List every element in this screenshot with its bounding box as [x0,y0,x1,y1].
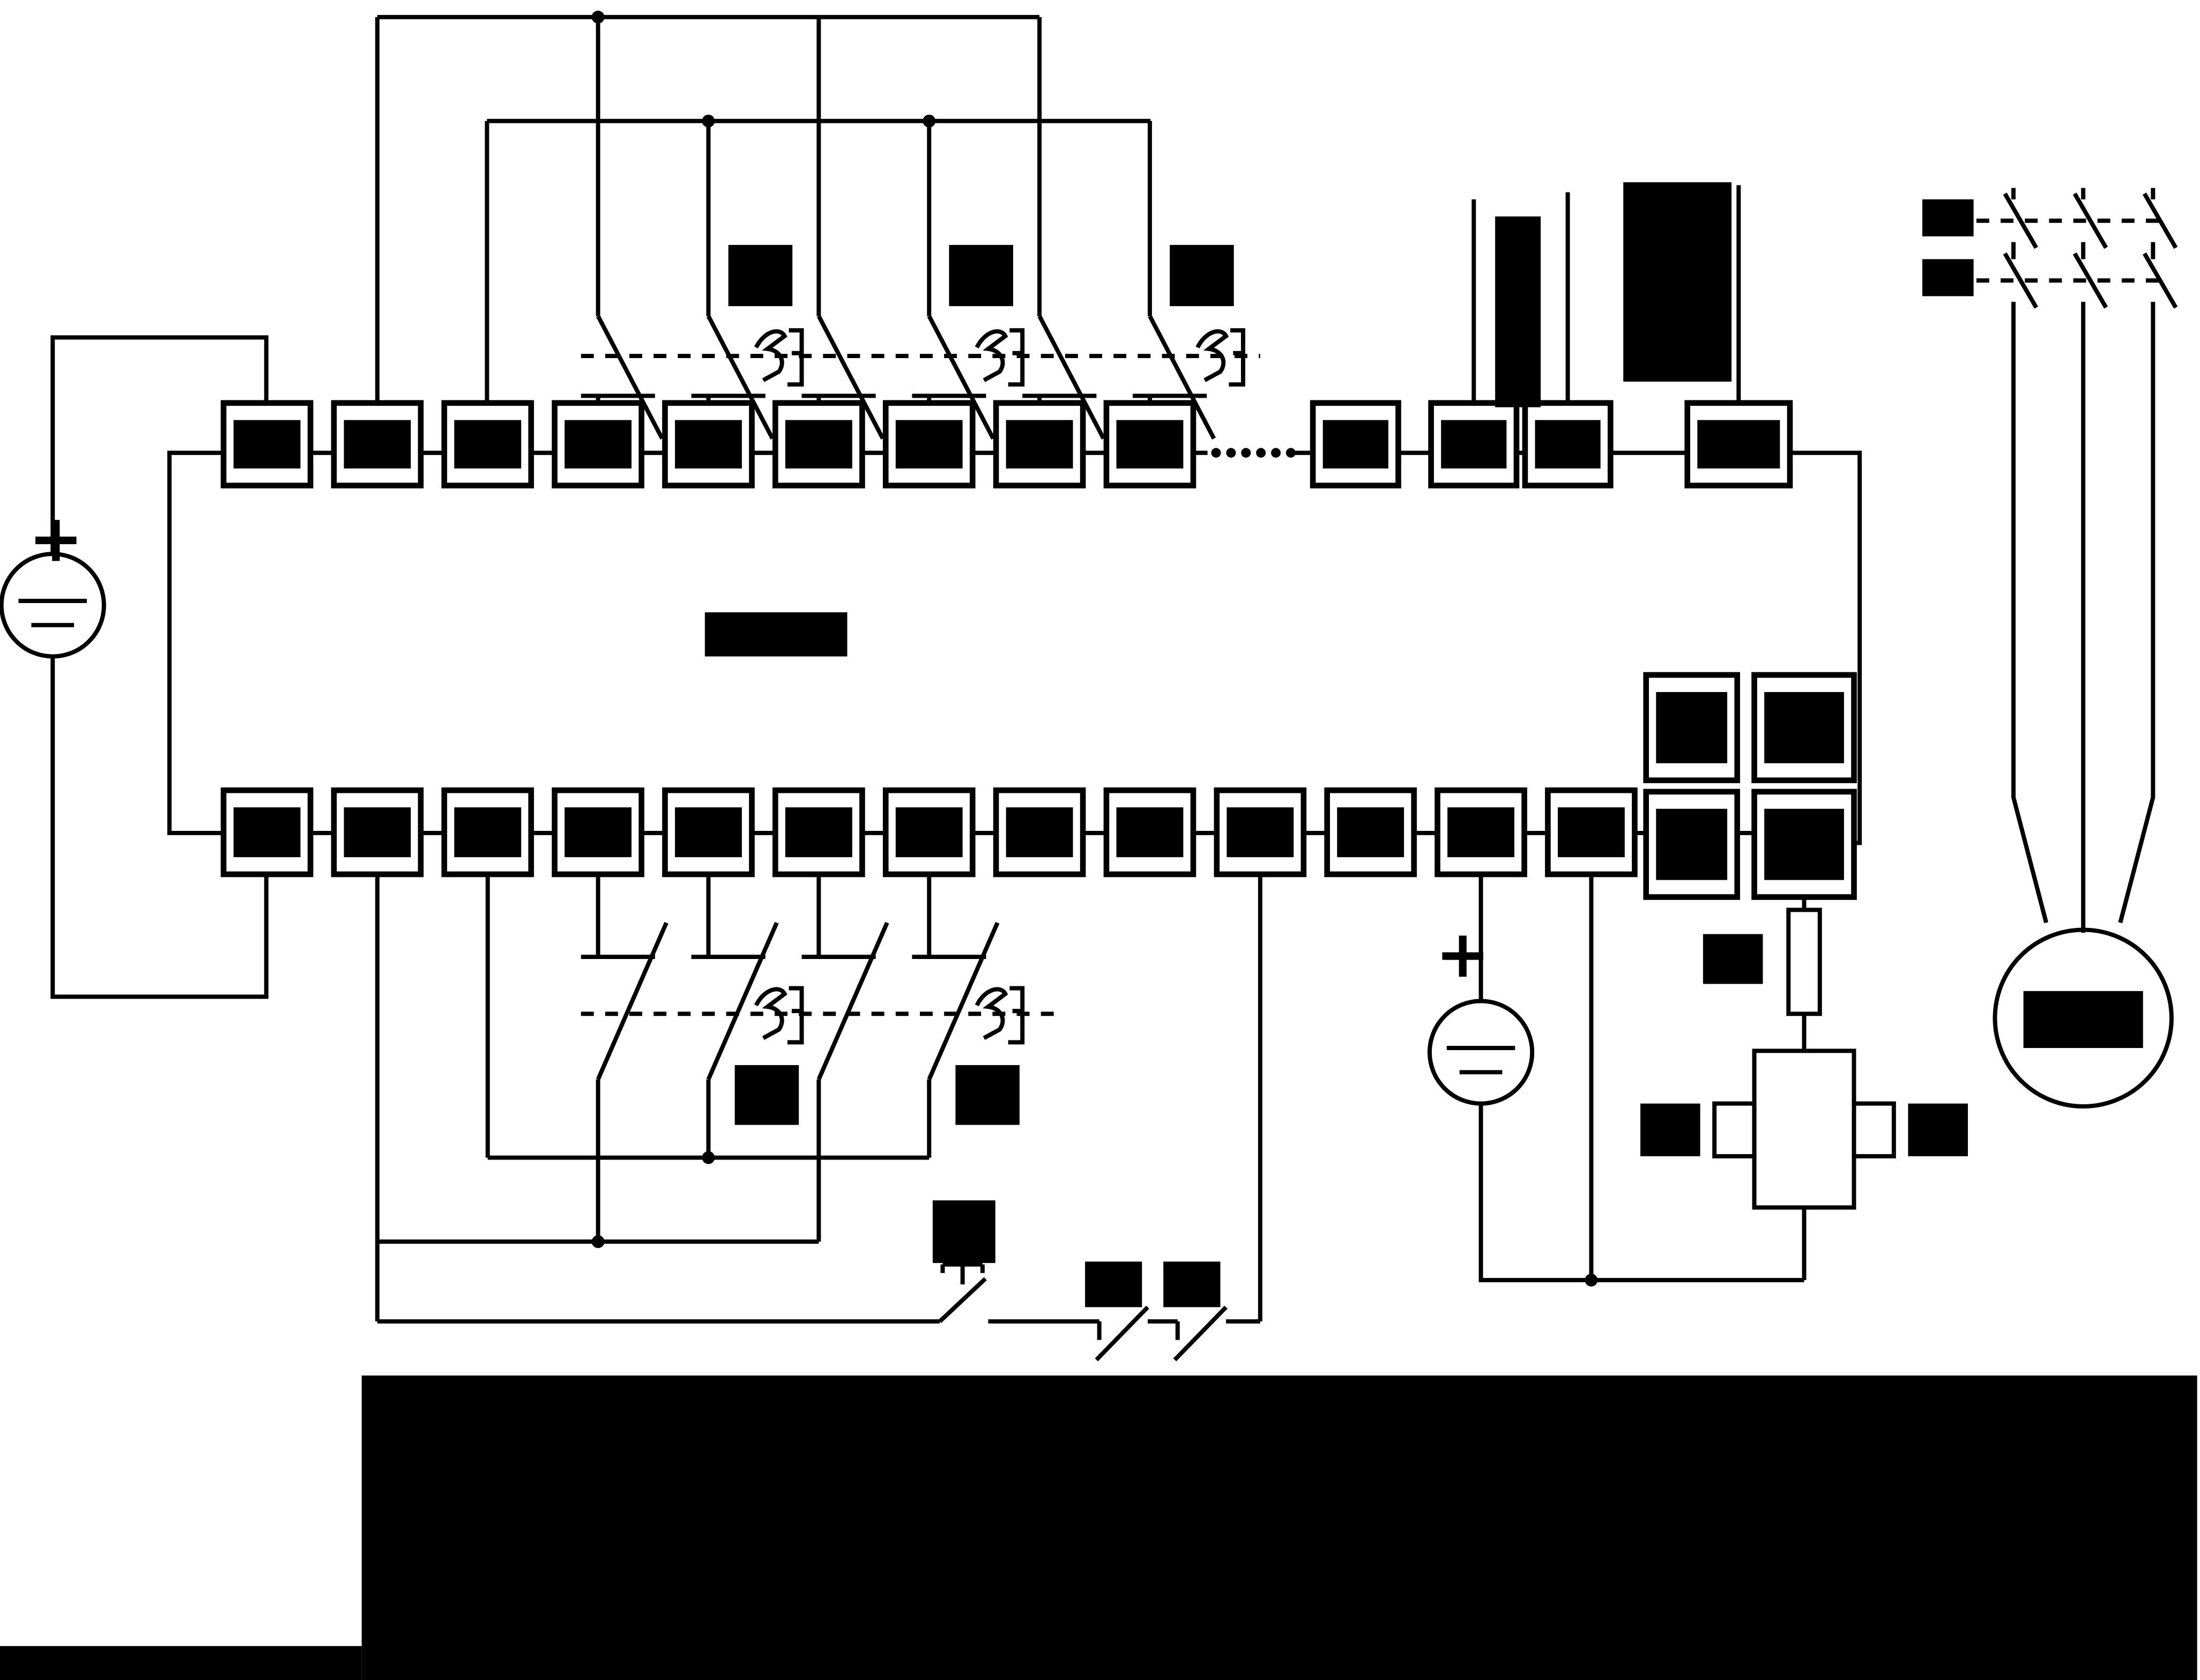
continuation-dot-3 [1241,448,1251,458]
output-terminal-11-redacted-label [1337,807,1404,857]
dc-right-polarity-label: + [1436,916,1490,992]
redacted-series-contact-label-2 [1163,1261,1220,1307]
redacted-caption-banner-strip [0,1646,362,1680]
output-block-terminal-2-redacted-label [1764,692,1844,763]
bottom-switch-lead-3 [802,874,876,957]
fuse-icon [1788,910,1819,1014]
output-block-terminal-3-redacted-label [1656,809,1727,880]
input-terminal-7-redacted-label [896,420,963,469]
output-terminal-8-redacted-label [1006,807,1073,857]
manual-actuator-glyph-2 [977,330,1022,384]
coil-left-tab-icon [1714,1104,1754,1156]
bottom-switch-lead-1 [581,874,655,957]
text-layer: ++ [28,501,1490,993]
output-terminal-1-redacted-label [234,807,301,857]
redacted-fuse-label [1703,934,1763,984]
push-button-blade [940,1278,985,1321]
redacted-bottom-switch-label-2 [955,1065,1020,1125]
input-terminal-6-redacted-label [785,420,852,469]
output-terminal-13-redacted-label [1558,807,1625,857]
bottom-switch-blade-2 [709,923,777,1079]
bottom-switch-blade-4 [929,923,998,1079]
plc-wiring-diagram: ++ [0,0,2200,1680]
redacted-sensor-bar [1495,217,1541,407]
redacted-series-contact-label-1 [1085,1261,1142,1307]
phase-line-to-motor-3 [2120,302,2153,923]
redacted-motor-label [2024,991,2143,1048]
redacted-labels-layer [0,182,2197,1680]
input-terminal-9-redacted-label [1117,420,1184,469]
dc-source-right-icon-dc-bars-icon [1447,1048,1515,1072]
input-terminal-10-redacted-label [1323,420,1388,469]
input-terminal-1-redacted-label [234,420,301,469]
output-terminal-12-redacted-label [1447,807,1514,857]
continuation-dot-4 [1256,448,1266,458]
coil-body-icon [1755,1051,1854,1207]
phase-line-to-motor-1 [2013,302,2046,923]
input-terminal-4-redacted-label [564,420,631,469]
bus-b-seg2 [1148,1321,1178,1340]
redacted-coil-label-left [1640,1104,1700,1156]
redacted-contactor-row1-label [1922,199,1974,236]
redacted-plc-model-label [705,612,848,656]
bottom-switch-blade-3 [819,923,887,1079]
bus-b-seg1 [988,1321,1099,1340]
junction-dot [592,1235,605,1248]
dc-left-polarity-label: + [28,501,83,577]
output-block-terminal-1-redacted-label [1656,692,1727,763]
terminal-blocks-layer [224,403,1854,897]
output-terminal-4-redacted-label [564,807,631,857]
push-button-actuator-icon [942,1265,982,1284]
output-terminal-10-redacted-label [1227,807,1294,857]
manual-actuator-glyph-5 [977,988,1022,1042]
bus-b-to-output10 [1226,874,1260,1321]
continuation-dot-1 [1211,448,1221,458]
output-terminal-9-redacted-label [1117,807,1184,857]
bottom-switch-lead-2 [692,874,765,957]
output-terminal-2-redacted-label [344,807,411,857]
output-terminal-3-redacted-label [454,807,521,857]
input-terminal-13-redacted-label [1697,420,1780,469]
continuation-dot-5 [1271,448,1281,458]
redacted-push-button-label [933,1200,995,1263]
terminal1-link-wire [169,453,224,833]
redacted-bottom-switch-label-1 [735,1065,799,1125]
input-terminal-11-redacted-label [1441,420,1506,469]
redacted-top-switch-label-2 [949,245,1013,306]
redacted-top-switch-label-3 [1170,245,1234,306]
dc-source-left-icon-dc-bars-icon [19,601,87,625]
coil-right-tab-icon [1854,1104,1894,1156]
output-block-terminal-4-redacted-label [1764,809,1844,880]
bottom-switch-blade-1 [598,923,667,1079]
input-terminal-5-redacted-label [675,420,742,469]
redacted-sensor-block [1623,182,1731,382]
output-terminal-6-redacted-label [785,807,852,857]
redacted-top-switch-label-1 [729,245,793,306]
continuation-dot-2 [1226,448,1236,458]
input-terminal-12-redacted-label [1535,420,1601,469]
series-contact-blade-2 [1175,1307,1226,1359]
junction-dot [702,1151,715,1164]
series-contact-blade-1 [1096,1307,1148,1359]
input-terminal-3-redacted-label [454,420,521,469]
output-terminal-5-redacted-label [675,807,742,857]
output-terminal-7-redacted-label [896,807,963,857]
input13-to-output-block-wire [1790,453,1860,843]
input-terminal-8-redacted-label [1006,420,1073,469]
input-terminal-2-redacted-label [344,420,411,469]
redacted-coil-label-right [1908,1104,1968,1156]
bottom-switch-lead-4 [912,874,986,957]
continuation-dot-6 [1286,448,1296,458]
dc-source-right-icon [1430,1001,1532,1103]
redacted-caption-banner [362,1376,2197,1680]
redacted-contactor-row2-label [1922,259,1974,296]
